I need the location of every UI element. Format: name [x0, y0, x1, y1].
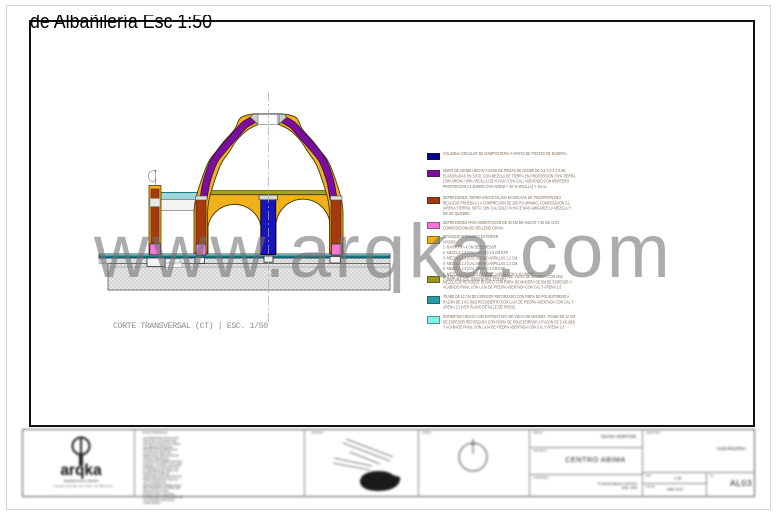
- svg-text:arqka: arqka: [60, 462, 102, 479]
- svg-text:av. siempre viva 123 col. cen: av. siempre viva 123 col. centro tel. 55…: [52, 484, 112, 488]
- svg-text:arquitectura y diseño: arquitectura y diseño: [63, 479, 98, 483]
